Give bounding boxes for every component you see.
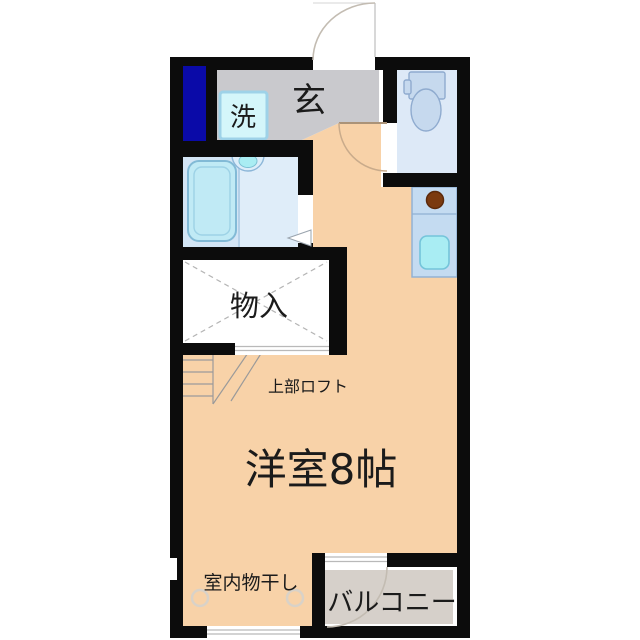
toilet-bowl: [411, 89, 441, 131]
wall-balcony-divider: [387, 553, 470, 567]
wall-toilet-left: [383, 57, 397, 123]
toilet-flush-button: [404, 80, 411, 94]
main-room-label: 洋室8帖: [245, 445, 398, 494]
wall-toilet-bottom: [383, 173, 470, 187]
entrance-swing-door: [313, 3, 375, 60]
wall-closet-bottom: [170, 343, 235, 355]
pipe-space: [183, 66, 206, 141]
wall-bath-closet: [170, 247, 347, 260]
bathtub: [188, 161, 236, 241]
wall-bath-right-upper: [298, 140, 313, 195]
entrance-door-gap: [313, 57, 375, 70]
laundry-label: 洗: [230, 103, 256, 133]
floor-plan-svg: 玄 洗 物入 上部ロフト 洋室8帖 室内物干し バルコニー: [0, 0, 640, 640]
drying-note-label: 室内物干し: [203, 572, 298, 594]
floor-plan-image: 玄 洗 物入 上部ロフト 洋室8帖 室内物干し バルコニー: [0, 0, 640, 640]
closet-sliding-door: [235, 343, 329, 355]
wall-entrance-bath: [170, 140, 313, 157]
toilet-door-gap: [383, 123, 397, 173]
balcony-label: バルコニー: [327, 588, 456, 618]
storage-label: 物入: [230, 289, 288, 323]
wall-balcony-left-column: [312, 553, 325, 638]
loft-note-label: 上部ロフト: [268, 377, 348, 396]
balcony-door-gap: [325, 553, 387, 567]
wall-right: [457, 57, 470, 638]
bottom-window: [207, 626, 300, 638]
stove-burner: [427, 192, 444, 209]
wall-closet-right: [329, 247, 347, 355]
wall-left-notch: [170, 558, 177, 580]
entrance-label: 玄: [292, 81, 326, 121]
kitchen-sink: [420, 236, 449, 269]
